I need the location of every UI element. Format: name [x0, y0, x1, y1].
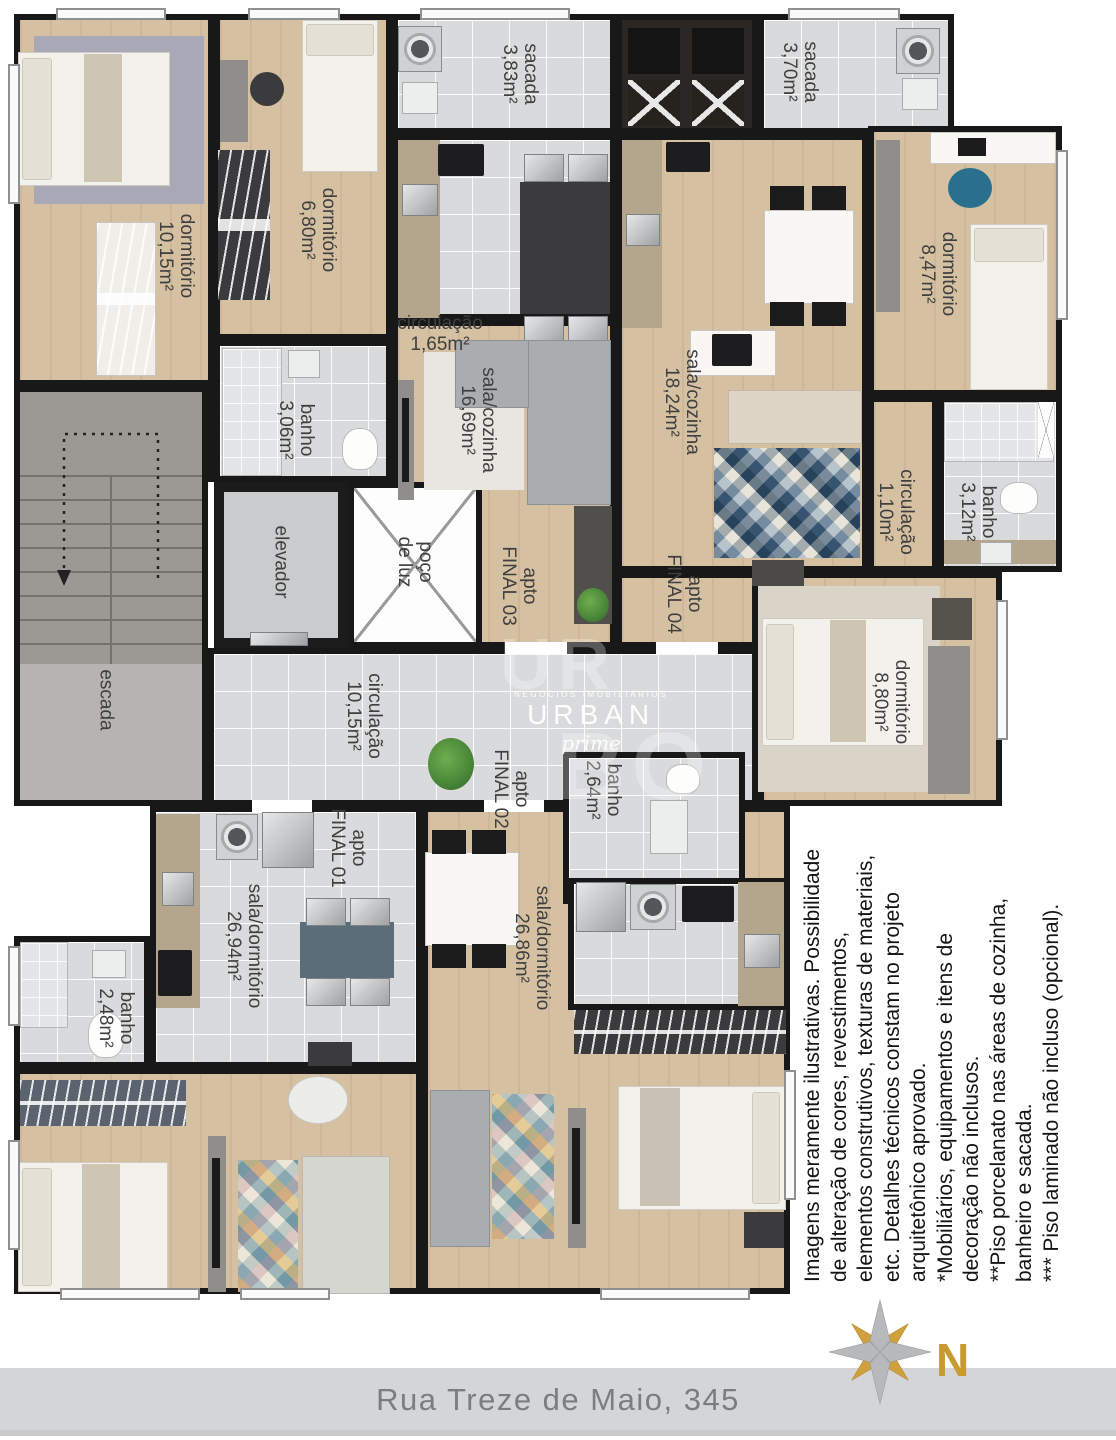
room-escada — [14, 386, 208, 806]
compass-north-letter: N — [936, 1334, 969, 1386]
chair — [812, 302, 846, 326]
washing-machine — [216, 814, 258, 860]
cooktop — [158, 950, 192, 996]
window — [788, 8, 900, 20]
label-apto-final-04: aptoFINAL 04 — [663, 554, 705, 634]
shaft-closet — [628, 28, 680, 74]
footer-divider — [0, 1430, 1116, 1436]
window — [8, 64, 20, 204]
washing-machine — [630, 884, 676, 930]
bathroom-sink — [92, 950, 126, 978]
cooktop — [712, 334, 752, 366]
label-dormitorio-1015: dormitório10,15m² — [155, 214, 197, 298]
duct — [1038, 402, 1054, 458]
rug-triangles — [492, 1094, 554, 1239]
label-sacada-370: sacada3,70m² — [779, 41, 821, 102]
label-banho-312: banho3,12m² — [957, 482, 999, 541]
wardrobe — [928, 646, 970, 794]
sofa — [527, 340, 611, 505]
chair — [770, 186, 804, 210]
laptop — [958, 138, 986, 156]
pouf — [752, 560, 804, 586]
bed-blanket — [82, 1164, 120, 1288]
fridge — [576, 882, 626, 932]
window — [8, 946, 20, 1026]
label-banho-248: banho2,48m² — [95, 988, 137, 1047]
chair — [432, 830, 466, 854]
dining-table — [520, 182, 610, 314]
bed-blanket — [84, 54, 122, 182]
label-dormitorio-880: dormitório8,80m² — [870, 660, 912, 744]
shower — [222, 348, 282, 476]
label-sacada-383: sacada3,83m² — [499, 43, 541, 104]
label-poco-de-luz: poçode luz — [394, 537, 436, 588]
chair — [306, 898, 346, 926]
shaft-closet — [692, 28, 744, 74]
bed-pillow — [974, 228, 1044, 262]
sofa — [728, 390, 862, 444]
fridge — [262, 812, 314, 868]
plant — [577, 588, 609, 622]
bed-blanket — [640, 1088, 680, 1206]
label-circulacao-165: circulação1,65m² — [397, 313, 483, 355]
bathroom-sink — [650, 800, 688, 854]
chair — [770, 302, 804, 326]
rug-triangles — [238, 1160, 298, 1292]
dining-table — [300, 922, 394, 978]
label-banho-264: banho2,64m² — [582, 760, 624, 819]
kitchen-sink — [626, 214, 660, 246]
window — [784, 1070, 796, 1200]
label-elevador: elevador — [271, 526, 292, 599]
label-apto-final-01: aptoFINAL 01 — [327, 808, 369, 888]
chair — [432, 944, 466, 968]
compass-silver-points — [829, 1300, 931, 1404]
label-apto-final-03: aptoFINAL 03 — [498, 546, 540, 626]
kitchen-sink — [402, 184, 438, 216]
window — [60, 1288, 200, 1300]
desk-chair — [948, 168, 992, 208]
bed-pillows — [22, 58, 52, 180]
desk — [220, 60, 248, 142]
dining-table — [764, 210, 854, 304]
label-sala-dormitorio-2686: sala/dormitório26,86m² — [511, 886, 553, 1011]
kitchen-sink — [744, 934, 780, 968]
stairs-graphic — [20, 392, 202, 800]
disclaimer-text: Imagens meramente ilustrativas. Possibil… — [800, 814, 1065, 1282]
label-escada: escada — [96, 669, 117, 730]
compass-rose: N — [800, 1284, 980, 1424]
desk-chair — [250, 72, 284, 106]
elevator-door — [250, 632, 308, 646]
label-sala-dormitorio-2694: sala/dormitório26,94m² — [223, 884, 265, 1009]
door-apt01 — [252, 800, 312, 812]
window — [1056, 150, 1068, 320]
chair — [568, 154, 608, 182]
chair — [524, 154, 564, 182]
floor-plan-page: dormitório10,15m² dormitório6,80m² sacad… — [0, 0, 1116, 1440]
bed-pillow — [306, 24, 374, 56]
wardrobe — [574, 1010, 786, 1054]
window — [420, 8, 570, 20]
corner-sofa — [430, 1090, 490, 1247]
bathroom-sink — [980, 542, 1012, 564]
toilet — [666, 764, 700, 794]
washing-machine — [896, 28, 940, 74]
door-apt04 — [656, 642, 718, 654]
nightstand — [744, 1212, 784, 1248]
laundry-sink — [902, 78, 938, 110]
window — [248, 8, 340, 20]
cooktop — [438, 144, 484, 176]
dresser — [932, 598, 972, 640]
label-dormitorio-847: dormitório8,47m² — [917, 232, 959, 316]
window — [56, 8, 166, 20]
shower — [20, 942, 68, 1028]
window — [996, 600, 1008, 740]
bed-pillows — [766, 624, 794, 740]
washing-machine — [398, 26, 442, 72]
curtain — [876, 140, 900, 312]
window — [600, 1288, 750, 1300]
wardrobe — [218, 150, 270, 300]
window — [8, 1140, 20, 1250]
laundry-sink — [402, 82, 438, 114]
cooktop — [666, 142, 710, 172]
dining-table — [425, 852, 519, 946]
chair — [812, 186, 846, 210]
kitchen-sink — [162, 872, 194, 906]
plant — [428, 738, 474, 790]
toilet — [342, 428, 378, 470]
shaft-duct — [628, 80, 680, 126]
wall-segment — [208, 386, 214, 482]
cooktop — [682, 886, 734, 922]
label-apto-final-02: aptoFINAL 02 — [490, 749, 532, 829]
kitchen-counter — [398, 140, 440, 318]
door-apt03 — [505, 642, 567, 654]
bed-blanket — [830, 620, 866, 742]
label-sala-cozinha-1824: sala/cozinha18,24m² — [661, 349, 703, 455]
chair — [306, 978, 346, 1006]
label-circulacao-110: circulação1,10m² — [875, 469, 917, 555]
chair — [472, 830, 506, 854]
toilet — [1000, 482, 1038, 514]
wardrobe — [20, 1080, 186, 1126]
desk — [930, 132, 1056, 164]
wardrobe — [96, 222, 156, 376]
sofa — [302, 1156, 390, 1294]
window — [240, 1288, 330, 1300]
label-dormitorio-680: dormitório6,80m² — [297, 188, 339, 272]
desk — [308, 1042, 352, 1066]
label-sala-cozinha-1669: sala/cozinha16,69m² — [457, 367, 499, 473]
bed-pillows — [22, 1168, 52, 1286]
round-chair — [288, 1076, 348, 1124]
chair — [350, 978, 390, 1006]
rug-triangles — [714, 448, 860, 558]
shaft-duct — [692, 80, 744, 126]
tv — [402, 398, 409, 482]
label-circulacao-1015: circulação10,15m² — [343, 673, 385, 759]
bathroom-sink — [288, 350, 320, 378]
chair — [350, 898, 390, 926]
tv — [572, 1128, 580, 1224]
bed-pillows — [752, 1092, 780, 1204]
chair — [472, 944, 506, 968]
label-banho-306: banho3,06m² — [275, 400, 317, 459]
tv — [212, 1158, 220, 1268]
